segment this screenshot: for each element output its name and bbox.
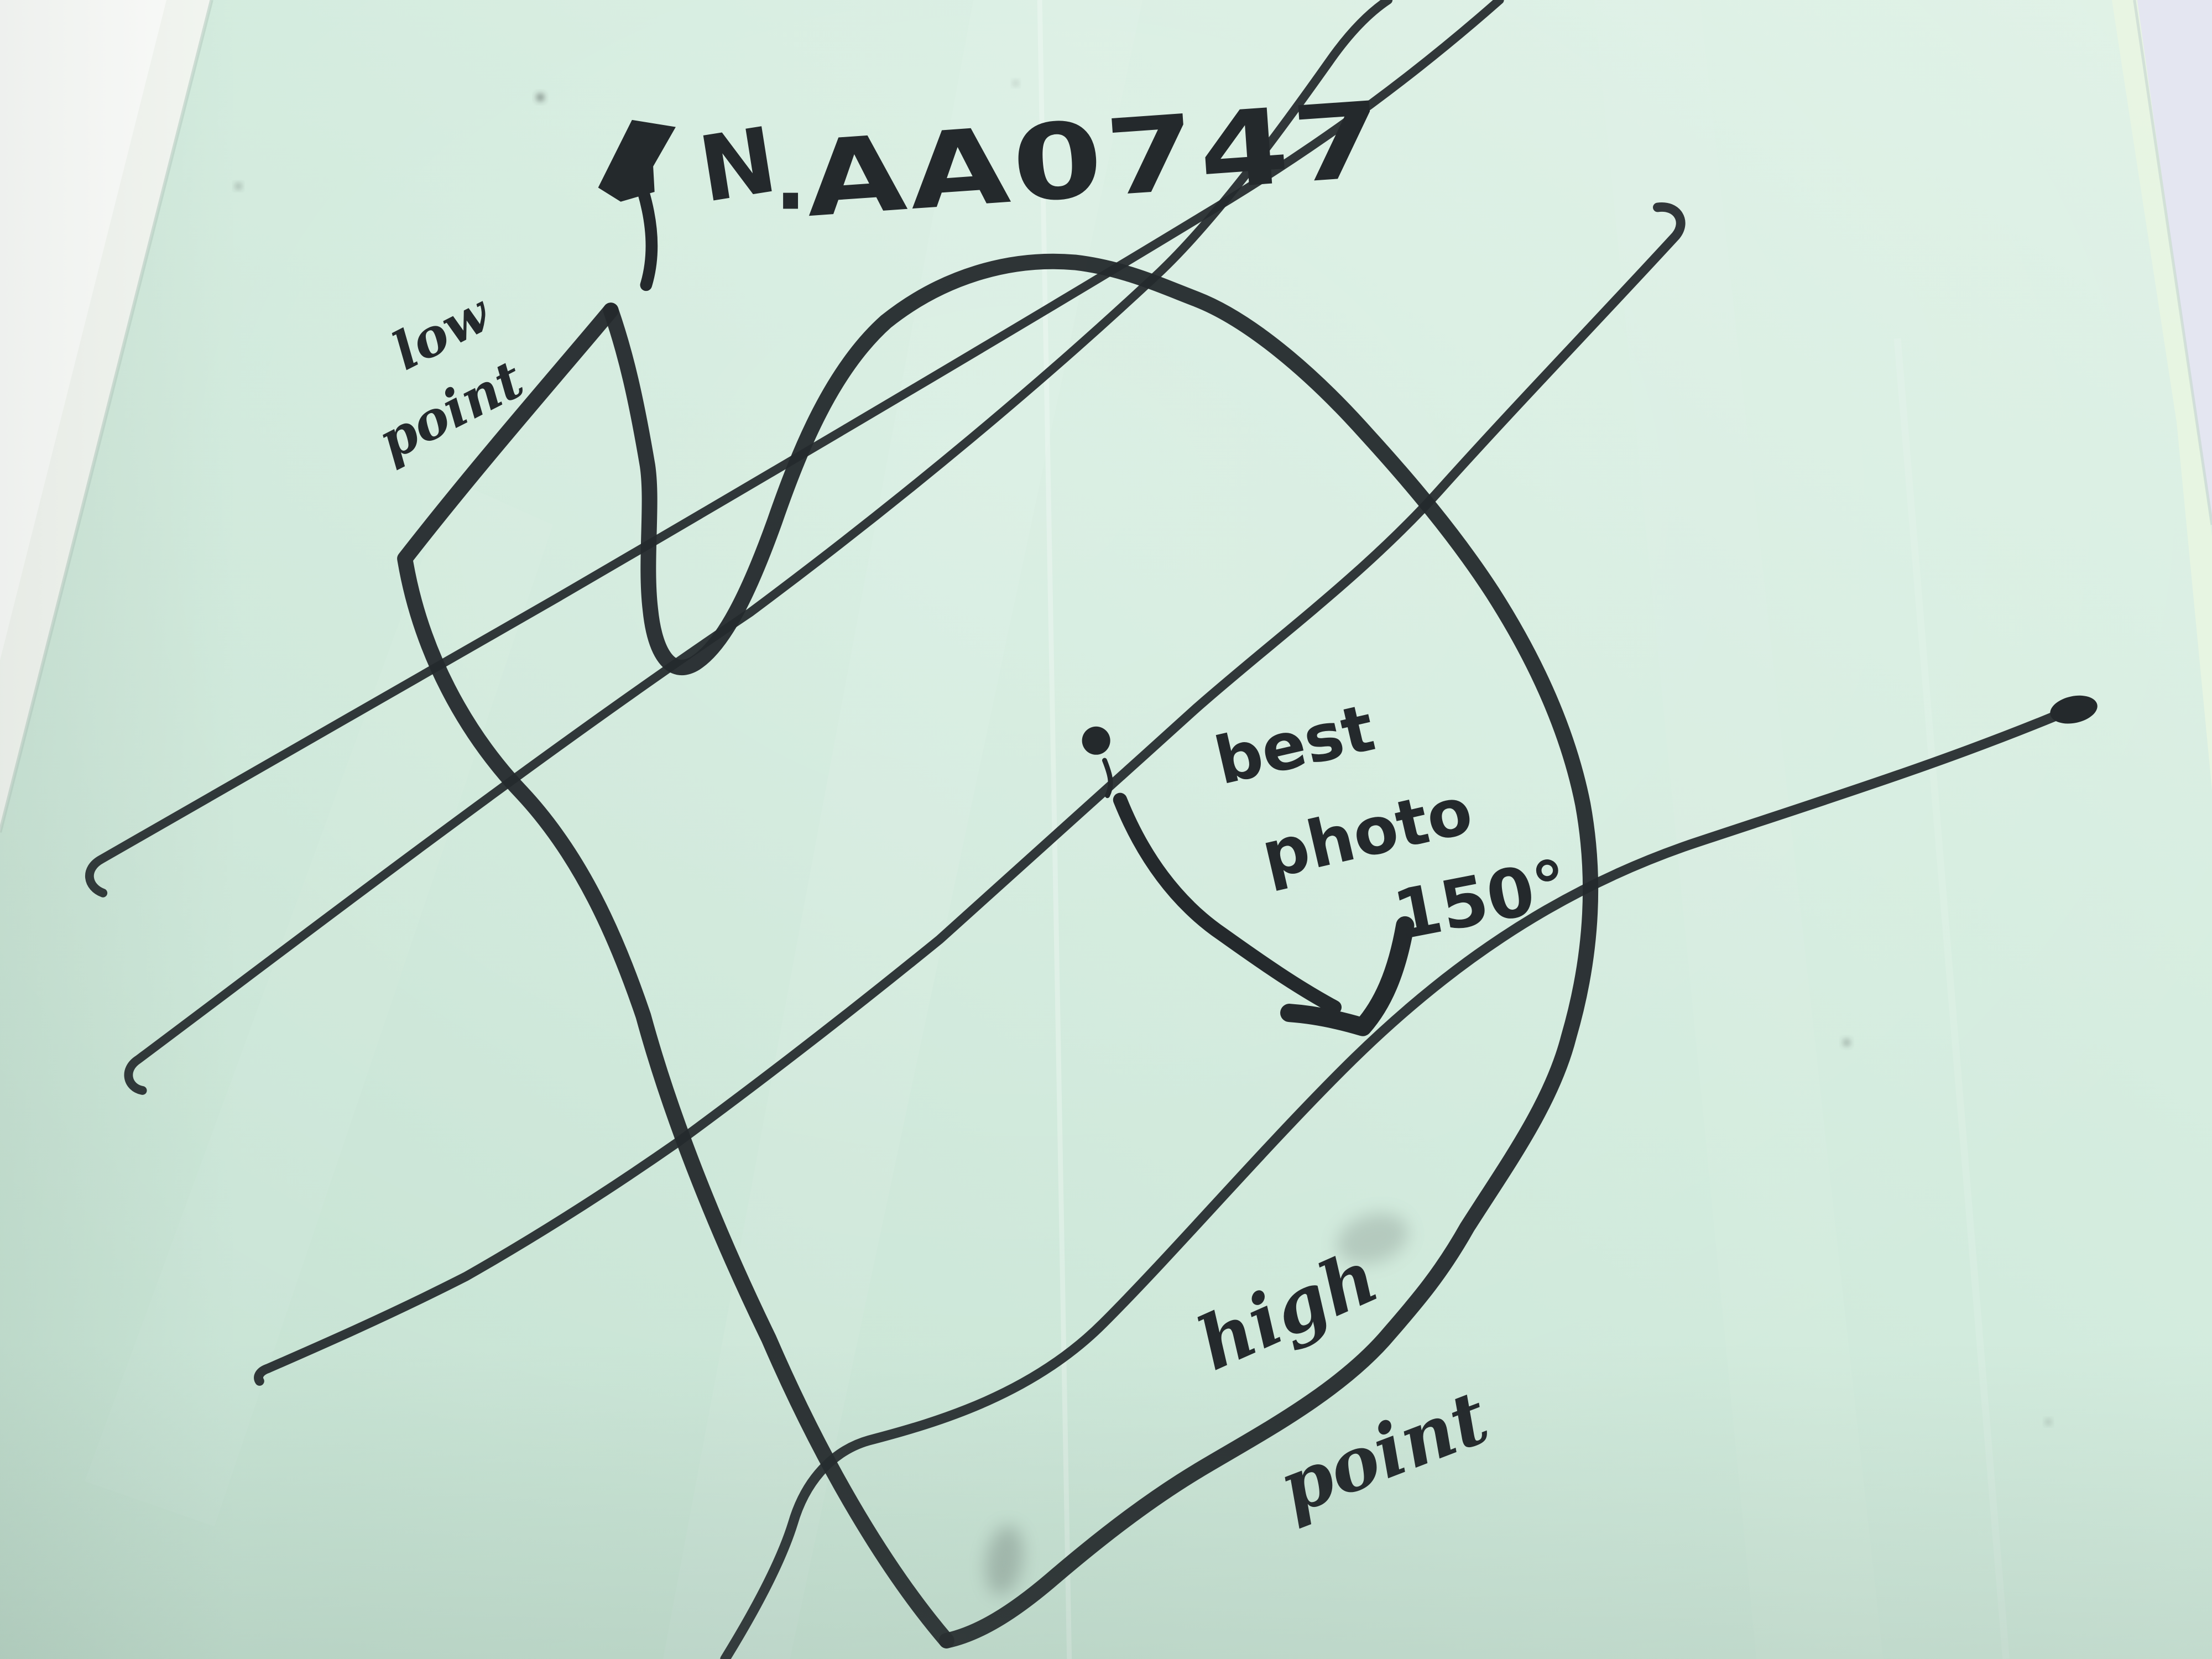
site-sketch-canvas: N . AA0747 low point best photo 150° hig… [0, 0, 2212, 1659]
title-separator: . [775, 131, 807, 229]
paper-speck [1013, 81, 1018, 86]
best-photo-dot [1082, 727, 1110, 755]
paper-speck [1843, 1039, 1850, 1046]
bottom-shadow-vignette [0, 1340, 2212, 1659]
left-shadow-vignette [0, 0, 240, 1659]
photo-of-hand-drawn-site-sketch: N . AA0747 low point best photo 150° hig… [0, 0, 2212, 1659]
paper-speck [536, 93, 544, 101]
north-label: N [692, 107, 784, 223]
